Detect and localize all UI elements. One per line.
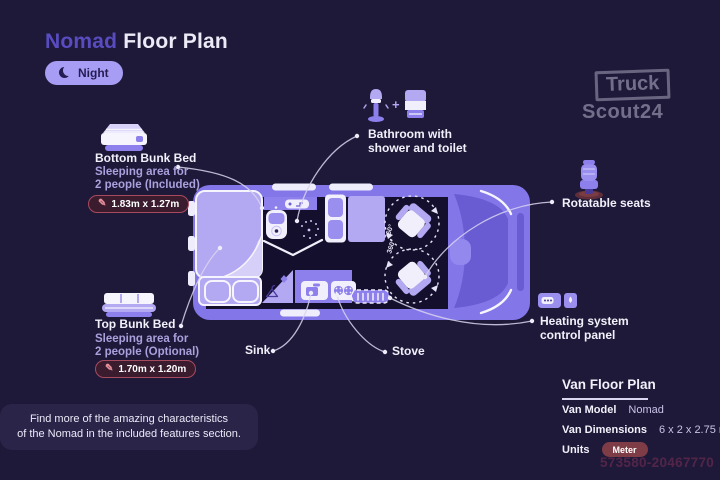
- pencil-icon: ✎: [105, 364, 113, 374]
- units-label: Units: [562, 444, 590, 456]
- bottom-bunk-dimensions-badge[interactable]: ✎ 1.83m x 1.27m: [88, 195, 189, 213]
- pencil-icon: ✎: [98, 199, 106, 209]
- page-title-model: Nomad: [45, 30, 117, 53]
- bathroom-door: [264, 240, 322, 255]
- top-bunk-dimensions: 1.70m x 1.20m: [118, 364, 186, 375]
- info-panel-title: Van Floor Plan: [562, 377, 656, 392]
- van-model-label: Van Model: [562, 404, 616, 416]
- top-bunk-subtitle-2: 2 people (Optional): [95, 346, 199, 358]
- logo-line2: Scout24: [582, 101, 670, 124]
- page-title: Nomad Floor Plan: [45, 30, 228, 54]
- bottom-bunk-title: Bottom Bunk Bed: [95, 151, 196, 165]
- toilet-icon: [403, 89, 428, 121]
- night-mode-toggle[interactable]: Night: [45, 61, 123, 85]
- bathroom-label-2: shower and toilet: [368, 141, 467, 155]
- rotation-label-front: 360°: [383, 223, 395, 239]
- rotatable-seats-label: Rotatable seats: [562, 196, 651, 210]
- dinette-area: [325, 195, 385, 243]
- cab-front: [450, 191, 524, 313]
- hanger-icon: [267, 286, 278, 297]
- bottom-bunk-bed-icon: [97, 121, 151, 153]
- bathroom-label-1: Bathroom with: [368, 127, 452, 141]
- rotation-label-rear: 360°: [385, 238, 397, 254]
- floor-plan-page: Nomad Floor Plan Night Truck Scout24: [0, 0, 720, 480]
- top-bunk-bed-icon: [100, 291, 158, 319]
- bottom-bunk-subtitle-2: 2 people (Included): [95, 179, 200, 191]
- connector-dots: [176, 134, 554, 354]
- footer-note-line1: Find more of the amazing characteristics: [0, 412, 258, 427]
- logo-line1: Truck: [594, 69, 670, 102]
- van-dimensions-value: 6 x 2 x 2.75 m: [659, 424, 720, 436]
- night-mode-label: Night: [78, 66, 109, 80]
- entry-step: [352, 290, 389, 303]
- plus-sign: +: [392, 97, 400, 112]
- info-panel-underline: [562, 398, 648, 400]
- top-bunk-title: Top Bunk Bed: [95, 317, 175, 331]
- heating-label-1: Heating system: [540, 314, 629, 328]
- heating-panel-icon: [538, 293, 577, 308]
- bathroom-area: [264, 197, 322, 255]
- sink-topview: [301, 281, 328, 300]
- van-model-value: Nomad: [628, 404, 663, 416]
- bottom-bunk-dimensions: 1.83m x 1.27m: [111, 199, 179, 210]
- van-dimensions-label: Van Dimensions: [562, 424, 647, 436]
- bunk-bed-area: [196, 191, 262, 305]
- bottom-bunk-subtitle-1: Sleeping area for: [95, 166, 188, 178]
- kitchen-area: [262, 270, 356, 303]
- moon-icon: [59, 67, 71, 79]
- footer-note: Find more of the amazing characteristics…: [0, 404, 258, 450]
- van-body: [188, 184, 530, 321]
- sink-label: Sink: [245, 343, 270, 357]
- listing-id-watermark: 573580-20467770: [600, 455, 714, 470]
- shower-spray: [301, 220, 319, 239]
- toilet-topview: [266, 206, 287, 239]
- rotatable-seat-front: 360°: [383, 196, 439, 250]
- stove-label: Stove: [392, 344, 425, 358]
- page-title-rest: Floor Plan: [123, 30, 228, 53]
- truckscout24-logo: Truck Scout24: [582, 70, 670, 124]
- top-bunk-dimensions-badge[interactable]: ✎ 1.70m x 1.20m: [95, 360, 196, 378]
- callout-connectors: [178, 136, 552, 352]
- top-bunk-subtitle-1: Sleeping area for: [95, 333, 188, 345]
- heating-label-2: control panel: [540, 328, 615, 342]
- footer-note-line2: of the Nomad in the included features se…: [0, 427, 258, 442]
- info-row-dimensions: Van Dimensions 6 x 2 x 2.75 m: [562, 424, 720, 436]
- seat-icon: [571, 159, 607, 201]
- stove-topview: [331, 281, 356, 300]
- shower-icon: [363, 87, 389, 123]
- info-row-model: Van Model Nomad: [562, 404, 664, 416]
- rotatable-seat-rear: 360°: [385, 238, 439, 303]
